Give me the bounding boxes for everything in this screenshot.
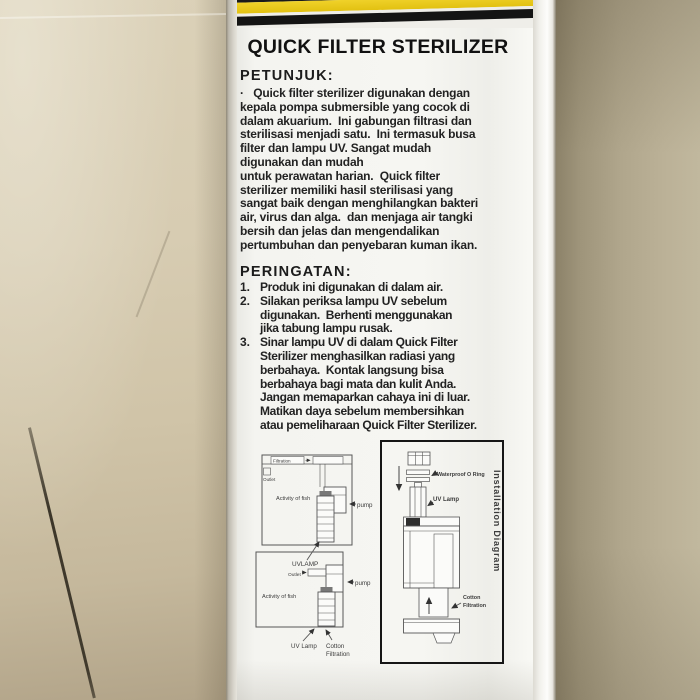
product-box: QUICK FILTER STERILIZER PETUNJUK: · Quic… (226, 0, 556, 700)
cotton-filtration-label: Filtration (326, 651, 350, 658)
waterproof-oring-label: Waterproof O Ring (437, 472, 485, 478)
box-right-highlight (533, 0, 556, 700)
peringatan-heading: PERINGATAN: (240, 264, 352, 280)
uvlamp-label: UVLAMP (292, 561, 318, 568)
diagram-panel: Filtration Outlet Activity of fish (237, 440, 533, 690)
photo-scene: QUICK FILTER STERILIZER PETUNJUK: · Quic… (0, 0, 700, 700)
outlet-label: Outlet (263, 477, 276, 482)
uv-lamp-arrow (303, 629, 314, 641)
floor-right (556, 0, 700, 700)
petunjuk-body: · Quick filter sterilizer digunakan deng… (240, 87, 478, 253)
cotton-filtration-label: Filtration (463, 603, 486, 609)
item-text: Sinar lampu UV di dalam Quick Filter Ste… (260, 336, 477, 433)
o-ring (407, 470, 430, 475)
installation-diagram: Installation Diagram Waterproof O Ring U… (381, 441, 503, 663)
pump-label: pump (357, 502, 373, 509)
product-label: QUICK FILTER STERILIZER PETUNJUK: · Quic… (237, 28, 533, 700)
floor-crack-line (136, 231, 170, 317)
aquarium-diagram-top: Filtration Outlet Activity of fish (262, 455, 373, 568)
cotton-arrow (452, 603, 461, 608)
activity-label: Activity of fish (262, 594, 296, 600)
filter-tube (419, 588, 448, 617)
peringatan-list: 1. Produk ini digunakan di dalam air. 2.… (240, 281, 533, 433)
device-base (404, 619, 460, 633)
o-ring (407, 478, 430, 482)
outlet-label: Outlet (288, 572, 301, 578)
device-body (404, 526, 460, 588)
installation-title: Installation Diagram (492, 470, 502, 572)
peringatan-item: 1. Produk ini digunakan di dalam air. (240, 281, 533, 295)
peringatan-item: 3. Sinar lampu UV di dalam Quick Filter … (240, 336, 533, 433)
peringatan-item: 2. Silakan periksa lampu UV sebelum digu… (240, 295, 533, 336)
petunjuk-heading: PETUNJUK: (240, 68, 334, 84)
activity-label: Activity of fish (276, 496, 310, 502)
cotton-filtration-label: Cotton (463, 595, 480, 601)
floor-left (0, 0, 226, 700)
item-number: 3. (240, 336, 260, 433)
uv-lamp-tube (410, 487, 426, 517)
uv-lamp-label: UV Lamp (433, 497, 459, 503)
item-number: 2. (240, 295, 260, 336)
device-foot (433, 633, 455, 643)
box-left-edge (226, 0, 237, 700)
tile-sheen-line (0, 13, 226, 19)
item-number: 1. (240, 281, 260, 295)
pump-label: pump (355, 580, 371, 587)
uv-lamp-arrow (428, 502, 433, 506)
uv-lamp-label: UV Lamp (291, 643, 317, 650)
cotton-arrow (326, 630, 332, 640)
item-text: Produk ini digunakan di dalam air. (260, 281, 443, 295)
cotton-filtration-label: Cotton (326, 643, 345, 650)
product-title: QUICK FILTER STERILIZER (237, 36, 519, 59)
item-text: Silakan periksa lampu UV sebelum digunak… (260, 295, 452, 336)
tile-grout-line (28, 427, 95, 698)
filtration-label: Filtration (273, 459, 291, 464)
